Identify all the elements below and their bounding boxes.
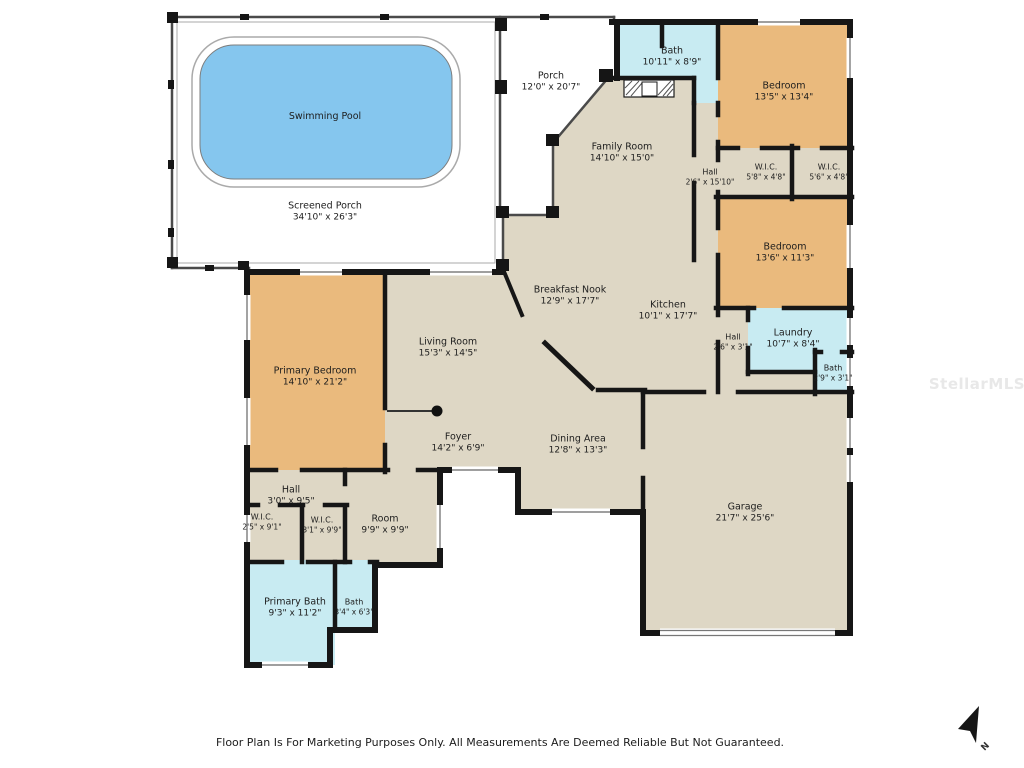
room-label-hall-kitchen: Hall 2'6" x 3'1" (713, 332, 752, 351)
room-label-wic-top-left: W.I.C. 5'8" x 4'8" (746, 162, 785, 181)
room-label-hall-tall: Hall 2'6" x 15'10" (686, 167, 735, 186)
room-label-living-room: Living Room 15'3" x 14'5" (419, 336, 478, 359)
room-label-wic-bottom-left: W.I.C. 2'5" x 9'1" (242, 512, 281, 531)
fireplace (624, 80, 674, 97)
room-label-bath-bottom: Bath 3'4" x 6'3" (334, 597, 373, 616)
room-label-bedroom-right: Bedroom 13'6" x 11'3" (756, 241, 815, 264)
room-label-hall-bottom: Hall 3'0" x 9'5" (267, 484, 314, 507)
room-label-porch: Porch 12'0" x 20'7" (522, 70, 581, 93)
watermark: StellarMLS (929, 375, 1024, 393)
room-label-wic-top-right: W.I.C. 5'6" x 4'8" (809, 162, 848, 181)
room-label-laundry: Laundry 10'7" x 8'4" (767, 327, 820, 350)
room-label-room: Room 9'9" x 9'9" (361, 513, 408, 536)
room-label-swimming-pool: Swimming Pool (289, 111, 361, 123)
room-label-bedroom-top-right: Bedroom 13'5" x 13'4" (755, 80, 814, 103)
room-label-foyer: Foyer 14'2" x 6'9" (432, 431, 485, 454)
room-label-wic-bottom-right: W.I.C. 3'1" x 9'9" (302, 515, 341, 534)
disclaimer-text: Floor Plan Is For Marketing Purposes Onl… (0, 736, 1000, 749)
room-label-bath-laundry: Bath 2'9" x 3'1" (813, 363, 852, 382)
room-label-dining-area: Dining Area 12'8" x 13'3" (549, 433, 608, 456)
floor-plan-page: Swimming Pool Screened Porch 34'10" x 26… (0, 0, 1024, 768)
column-dot (432, 406, 443, 417)
floor-plan-drawing (0, 0, 1024, 768)
room-label-kitchen: Kitchen 10'1" x 17'7" (639, 299, 698, 322)
bath-bottom-fill (335, 560, 375, 630)
room-label-breakfast-nook: Breakfast Nook 12'9" x 17'7" (534, 284, 606, 307)
room-label-family-room: Family Room 14'10" x 15'0" (590, 141, 654, 164)
room-label-garage: Garage 21'7" x 25'6" (716, 501, 775, 524)
room-label-primary-bedroom: Primary Bedroom 14'10" x 21'2" (274, 365, 357, 388)
room-label-screened-porch: Screened Porch 34'10" x 26'3" (288, 200, 362, 223)
room-label-primary-bath: Primary Bath 9'3" x 11'2" (264, 596, 326, 619)
garage-door (660, 631, 835, 636)
room-label-bath-top: Bath 10'11" x 8'9" (643, 45, 702, 68)
